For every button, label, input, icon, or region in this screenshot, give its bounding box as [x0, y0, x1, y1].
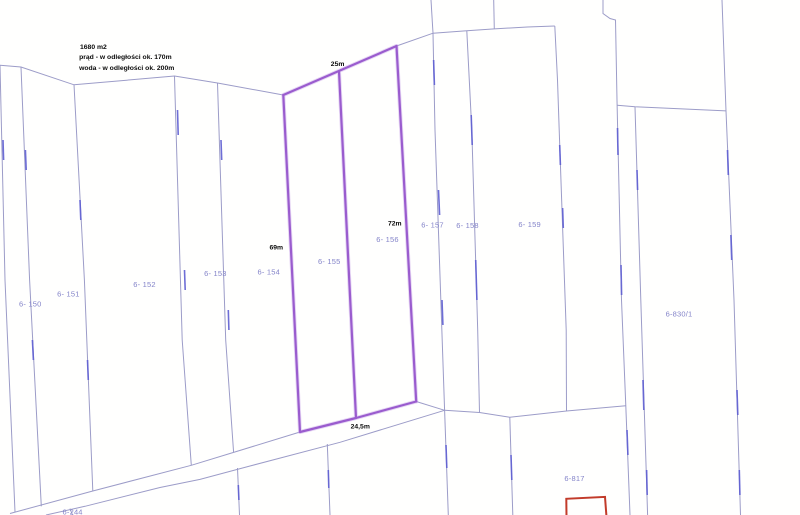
svg-text:6-830/1: 6-830/1: [666, 309, 693, 318]
svg-text:72m: 72m: [388, 221, 402, 228]
svg-text:6- 151: 6- 151: [57, 290, 79, 299]
svg-text:woda - w odległości ok. 200m: woda - w odległości ok. 200m: [78, 65, 174, 72]
svg-text:6- 153: 6- 153: [204, 269, 226, 278]
svg-text:6- 157: 6- 157: [421, 221, 443, 230]
svg-text:6- 155: 6- 155: [318, 257, 340, 266]
svg-text:prąd - w odległości ok. 170m: prąd - w odległości ok. 170m: [79, 54, 172, 61]
svg-text:6- 158: 6- 158: [456, 221, 478, 230]
svg-text:6-817: 6-817: [564, 474, 584, 483]
svg-text:6-244: 6-244: [63, 508, 83, 515]
svg-text:6- 159: 6- 159: [518, 220, 540, 229]
svg-text:6- 152: 6- 152: [133, 280, 155, 289]
svg-text:1680 m2: 1680 m2: [80, 44, 107, 51]
svg-text:6- 150: 6- 150: [19, 300, 41, 309]
svg-text:25m: 25m: [331, 61, 345, 68]
svg-text:6- 156: 6- 156: [376, 235, 398, 244]
svg-text:69m: 69m: [270, 245, 284, 252]
svg-text:24,5m: 24,5m: [351, 424, 370, 431]
svg-text:6- 154: 6- 154: [258, 268, 280, 277]
